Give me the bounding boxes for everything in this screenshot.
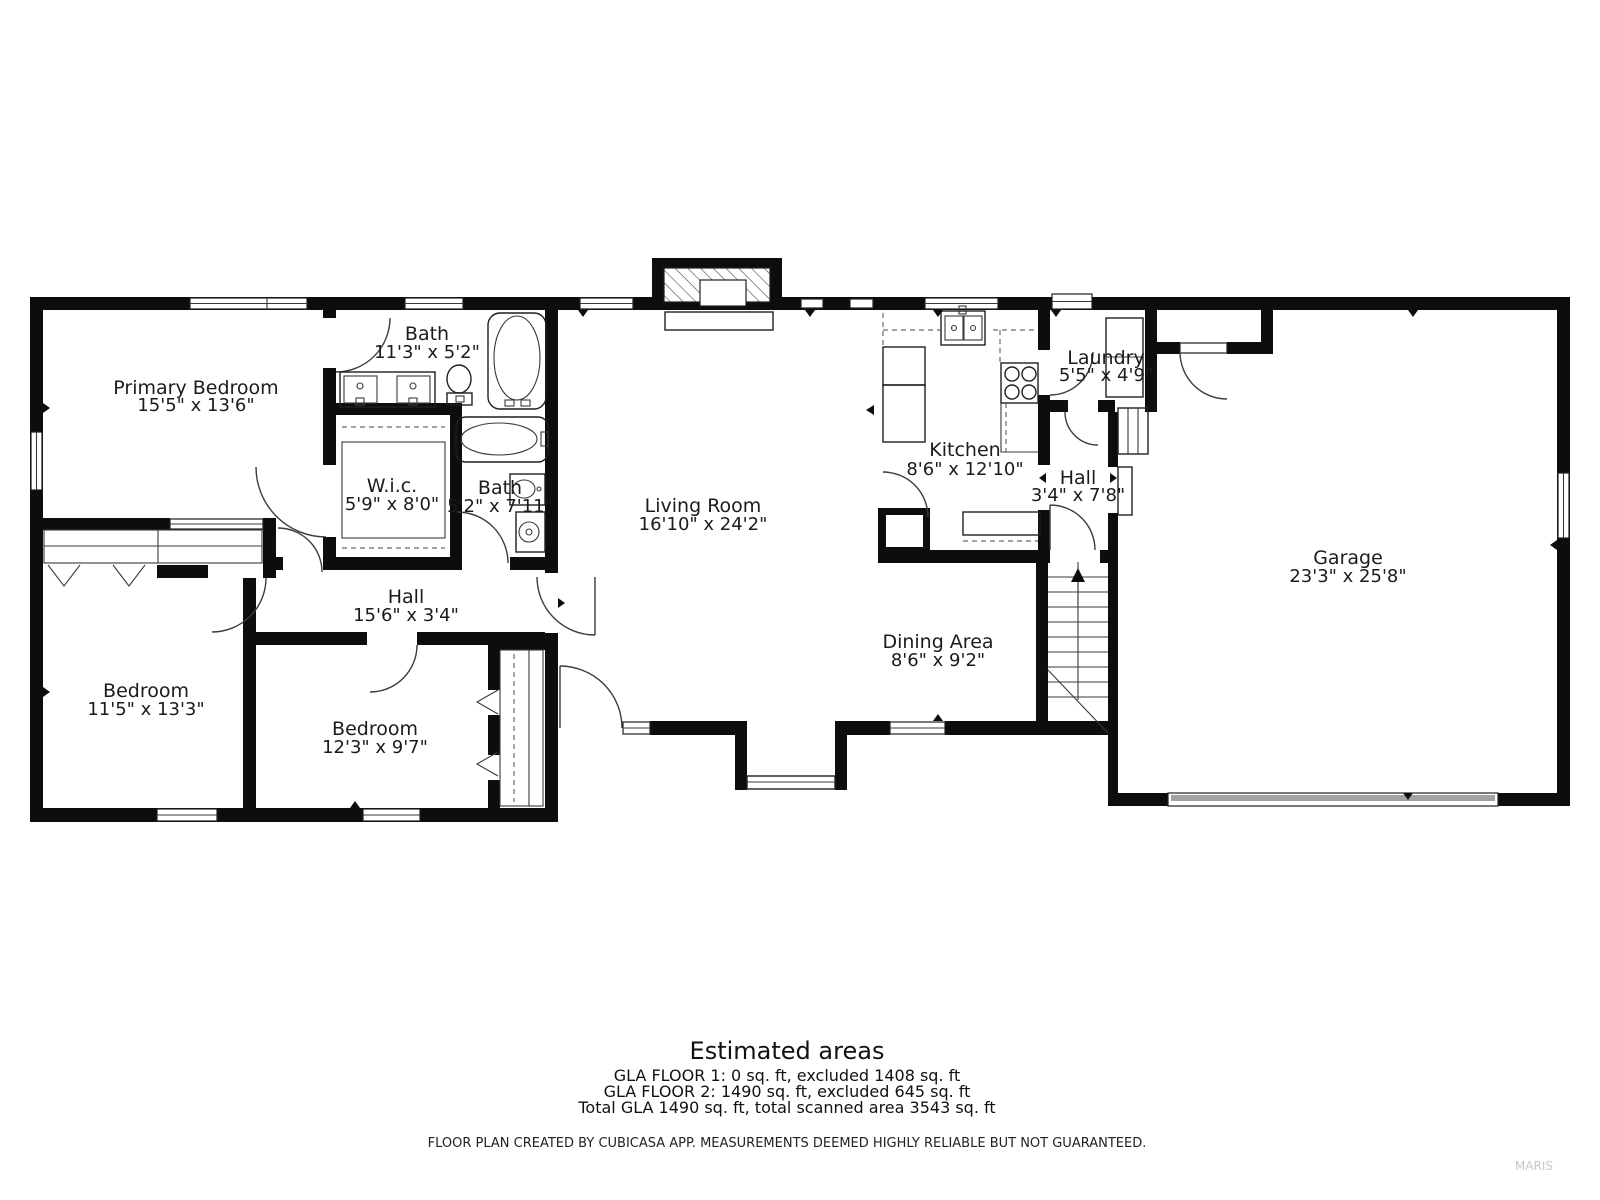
bathtub [456, 417, 548, 462]
door-bath-small [457, 512, 508, 563]
room-dims-bath-small: 5'2" x 7'11" [447, 496, 553, 517]
room-dims-bath-top: 11'3" x 5'2" [374, 342, 480, 363]
room-dims-bedroom-left: 11'5" x 13'3" [87, 699, 204, 720]
bifold-door-chevron [113, 565, 145, 586]
window-front-sidelight [623, 722, 650, 734]
room-dims-primary-bedroom: 15'5" x 13'6" [137, 395, 254, 416]
door-hall-stairs [1050, 505, 1095, 550]
bifold-door-chevron [48, 565, 80, 586]
toilet [447, 365, 472, 405]
window-bath-top [405, 298, 463, 309]
window-small-top-1 [801, 299, 823, 308]
staircase [1048, 562, 1108, 733]
kitchen-sink [941, 306, 985, 345]
door-front [560, 666, 622, 728]
room-dims-wic: 5'9" x 8'0" [345, 494, 439, 515]
primary-closets [44, 530, 262, 586]
disclaimer-text: FLOOR PLAN CREATED BY CUBICASA APP. MEAS… [428, 1136, 1147, 1151]
room-dims-kitchen: 8'6" x 12'10" [906, 459, 1023, 480]
kitchen-fixtures [883, 306, 1040, 541]
closets [44, 530, 543, 806]
maris-watermark: MARIS [1515, 1159, 1553, 1173]
window-living-top [580, 298, 633, 309]
porch-step [747, 776, 835, 789]
room-labels: Primary Bedroom 15'5" x 13'6" Bath 11'3"… [87, 323, 1406, 758]
room-dims-hall-right: 3'4" x 7'8" [1031, 485, 1125, 506]
window-garage-right [1558, 473, 1569, 538]
window-primary-left [31, 432, 42, 490]
window-dining-front [890, 722, 945, 734]
window-bedroom-left-bottom [157, 809, 217, 821]
room-dims-living-room: 16'10" x 24'2" [639, 514, 768, 535]
footer-block: FLOOR PLAN CREATED BY CUBICASA APP. MEAS… [428, 1136, 1553, 1173]
window-laundry-top [1052, 294, 1092, 309]
room-dims-bedroom-mid: 12'3" x 9'7" [322, 737, 428, 758]
window-primary-top [190, 298, 307, 309]
door-laundry-hall [1065, 412, 1098, 445]
door-garage-vestibule [1180, 352, 1227, 399]
stove [1001, 363, 1038, 403]
peninsula-counter [963, 512, 1040, 535]
floor-plan-svg: Primary Bedroom 15'5" x 13'6" Bath 11'3"… [0, 0, 1600, 1200]
bifold-door-chevron [477, 752, 498, 776]
door-bedroom-left [212, 578, 266, 632]
room-label-kitchen: Kitchen [929, 439, 1000, 461]
door-bedroom-mid [370, 645, 417, 692]
door-primary-neck [278, 528, 322, 572]
walls [30, 258, 1570, 822]
window-kitchen-top [925, 298, 998, 309]
room-dims-garage: 23'3" x 25'8" [1289, 566, 1406, 587]
double-vanity [340, 372, 435, 407]
window-bedroom-mid-bottom [363, 809, 420, 821]
garage-door [1168, 793, 1498, 806]
room-dims-laundry: 5'5" x 4'9" [1059, 365, 1153, 386]
counter-left-lower [883, 385, 925, 442]
stairs-up-arrow [1071, 568, 1085, 582]
bedroom-mid-closet [477, 650, 543, 806]
closet-cased-opening [170, 519, 263, 529]
room-dims-hall-left: 15'6" x 3'4" [353, 605, 459, 626]
hearth [665, 312, 773, 330]
bifold-door-chevron [477, 690, 498, 714]
gla-total: Total GLA 1490 sq. ft, total scanned are… [577, 1098, 995, 1117]
toilet [516, 512, 545, 552]
utility-closet [1118, 408, 1148, 454]
garage-entry-door-panel [1180, 343, 1227, 353]
estimated-areas-title: Estimated areas [690, 1037, 885, 1065]
bathtub [488, 313, 546, 409]
door-hall-living [537, 577, 595, 635]
room-dims-dining: 8'6" x 9'2" [891, 650, 985, 671]
window-small-top-2 [850, 299, 873, 308]
fireplace [664, 268, 773, 330]
estimated-areas-block: Estimated areas GLA FLOOR 1: 0 sq. ft, e… [577, 1037, 995, 1117]
counter-left-upper [883, 347, 925, 385]
